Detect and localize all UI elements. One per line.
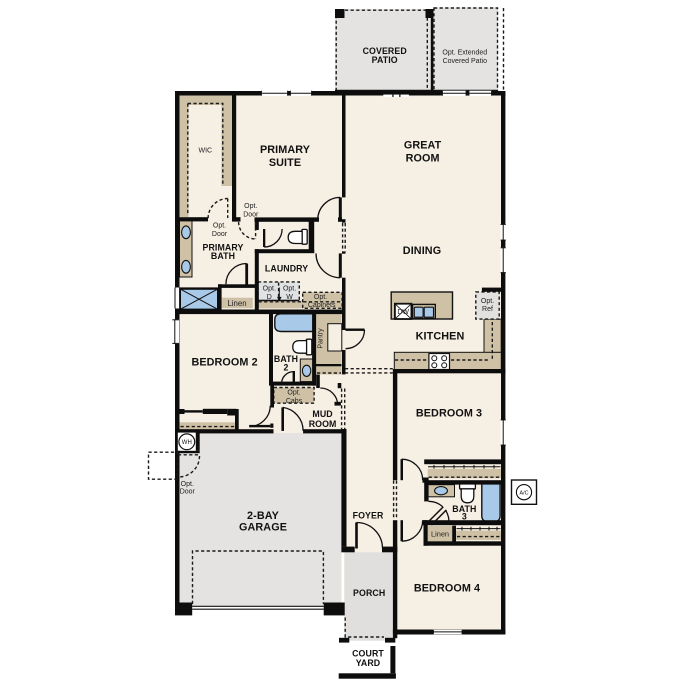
svg-text:WH: WH — [182, 440, 192, 446]
svg-text:ROOM: ROOM — [406, 153, 440, 165]
svg-text:FOYER: FOYER — [353, 511, 384, 521]
svg-text:A/C: A/C — [520, 490, 529, 496]
svg-text:Covered Patio: Covered Patio — [443, 58, 487, 65]
svg-text:BEDROOM 2: BEDROOM 2 — [191, 356, 257, 368]
svg-text:PRIMARY: PRIMARY — [260, 144, 311, 156]
svg-text:Opt.: Opt. — [283, 286, 296, 293]
svg-text:BEDROOM 4: BEDROOM 4 — [414, 582, 480, 594]
svg-text:GREAT: GREAT — [404, 140, 442, 152]
svg-text:Cabs: Cabs — [286, 398, 303, 405]
svg-text:DINING: DINING — [403, 245, 441, 257]
svg-text:Opt.: Opt. — [244, 203, 257, 210]
svg-text:PORCH: PORCH — [353, 588, 385, 598]
svg-text:3: 3 — [462, 512, 467, 522]
svg-text:Pantry: Pantry — [318, 328, 325, 349]
svg-text:BATH: BATH — [211, 251, 235, 261]
svg-text:Door: Door — [243, 212, 259, 219]
svg-text:MUD: MUD — [312, 409, 332, 419]
svg-text:Opt.: Opt. — [481, 298, 494, 305]
svg-text:W: W — [286, 294, 293, 301]
svg-text:2-BAY: 2-BAY — [247, 510, 280, 522]
svg-text:Opt.: Opt. — [263, 286, 276, 293]
svg-text:Linen: Linen — [431, 530, 449, 539]
svg-text:Linen: Linen — [227, 299, 246, 308]
svg-text:DW: DW — [397, 309, 409, 316]
svg-text:Opt.: Opt. — [287, 390, 300, 397]
svg-text:Ref: Ref — [482, 306, 493, 313]
svg-text:WIC: WIC — [198, 148, 212, 155]
svg-text:ROOM: ROOM — [309, 419, 337, 429]
svg-text:Door: Door — [180, 489, 196, 496]
svg-text:KITCHEN: KITCHEN — [416, 331, 465, 343]
svg-text:Opt.: Opt. — [213, 223, 226, 230]
svg-text:2: 2 — [284, 362, 289, 372]
svg-text:Door: Door — [212, 231, 228, 238]
svg-text:PATIO: PATIO — [372, 55, 398, 65]
svg-text:BEDROOM 3: BEDROOM 3 — [416, 408, 482, 420]
svg-text:Opt.: Opt. — [181, 481, 194, 488]
svg-text:GARAGE: GARAGE — [239, 522, 287, 534]
svg-text:Opt. Extended: Opt. Extended — [442, 50, 487, 57]
svg-text:D: D — [267, 294, 272, 301]
svg-text:YARD: YARD — [356, 658, 381, 668]
svg-text:SUITE: SUITE — [269, 157, 301, 169]
svg-text:Cabinets: Cabinets — [308, 302, 336, 309]
svg-text:LAUNDRY: LAUNDRY — [265, 263, 308, 273]
svg-text:Opt.: Opt. — [314, 294, 327, 301]
